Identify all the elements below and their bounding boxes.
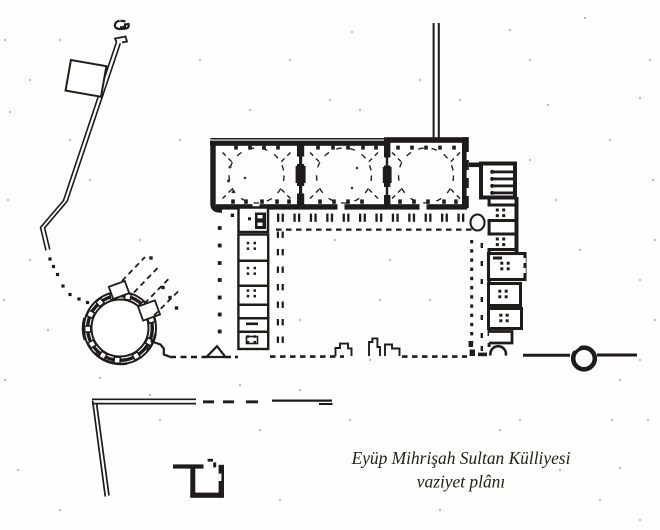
svg-text:vaziyet plânı: vaziyet plânı (417, 472, 505, 492)
svg-text:Eyüp Mihrişah Sultan Külliyesi: Eyüp Mihrişah Sultan Külliyesi (351, 448, 571, 468)
